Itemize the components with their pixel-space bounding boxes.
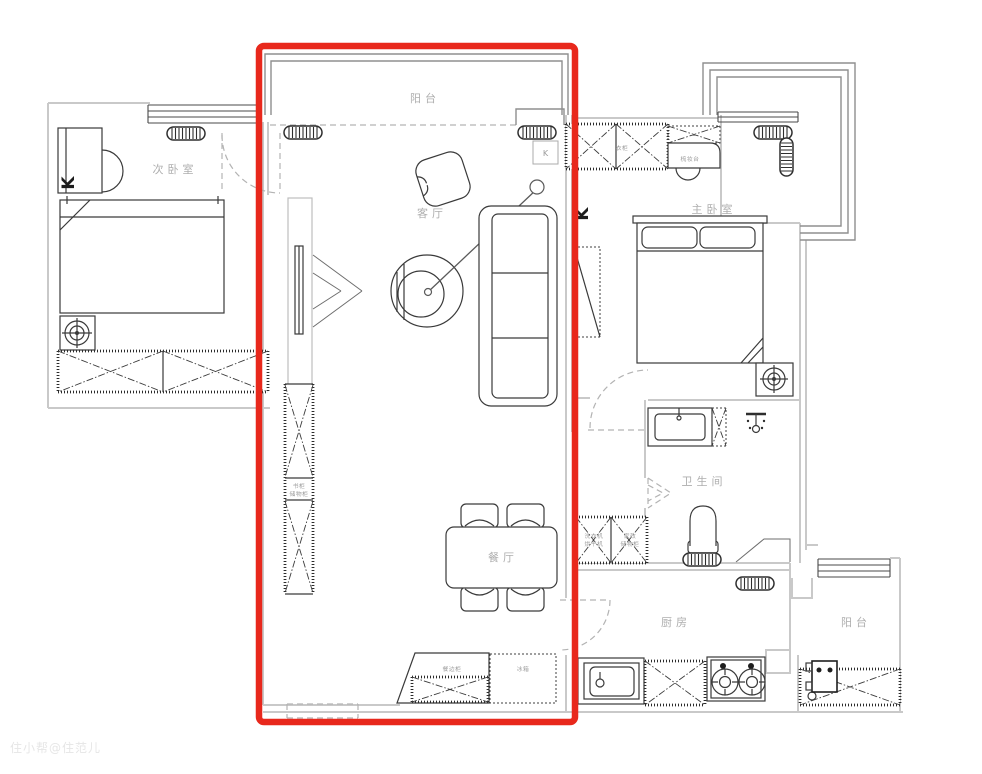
watermark: 住小帮@住范儿 — [10, 741, 101, 755]
living-room: 书柜 储物柜 K 客厅 阳台 — [284, 91, 600, 594]
shower-screen — [736, 539, 790, 562]
toilet — [683, 506, 721, 566]
walls — [48, 103, 903, 712]
shower-head — [746, 414, 766, 433]
window-secondary-bedroom — [148, 105, 258, 123]
room-label-balcony-top: 阳台 — [410, 91, 440, 105]
bed-master — [633, 216, 767, 363]
nightstand-master — [756, 363, 793, 396]
bed-secondary — [60, 196, 224, 313]
stool — [676, 168, 700, 180]
wardrobe-label: 衣柜 — [616, 144, 629, 152]
dining-chair — [461, 587, 498, 611]
window-master-bedroom — [718, 112, 798, 122]
desk-chair — [102, 150, 123, 192]
wardrobe-secondary — [58, 351, 268, 392]
storage-label-line1: 家政 — [624, 532, 637, 540]
storage-cabinet-tall: 书柜 储物柜 — [284, 384, 314, 594]
floor-plan-canvas: K K — [0, 0, 982, 774]
vanity-side-cabinet — [712, 408, 726, 446]
window-kitchen-balcony — [818, 559, 890, 577]
sofa — [479, 206, 557, 406]
room-label-dining-room: 餐厅 — [488, 550, 518, 564]
sideboard: 餐边柜 — [397, 653, 489, 703]
radiator-legend-letter: K — [543, 149, 549, 158]
room-label-kitchen: 厨房 — [661, 616, 691, 629]
secondary-bedroom: K 次卧室 — [58, 127, 280, 392]
bathroom: 卫生间 — [648, 408, 790, 566]
armchair — [413, 149, 473, 209]
cabinet-label-line2: 储物柜 — [290, 490, 309, 498]
dressing-table-label: 梳妆台 — [681, 155, 700, 163]
kitchen-counter-left — [645, 661, 705, 705]
radiator-marker-k: K — [59, 176, 79, 190]
dining-chair — [507, 504, 544, 528]
washer-label-line2: 烘干机 — [585, 540, 604, 548]
wardrobe-master: 衣柜 — [566, 124, 668, 169]
storage-label-line2: 储物柜 — [621, 540, 640, 548]
room-label-secondary-bedroom: 次卧室 — [153, 162, 198, 176]
dressing-table: 梳妆台 — [668, 126, 720, 180]
tv-view-lines — [313, 255, 362, 327]
vanity-sink — [648, 408, 712, 446]
tv-wall-unit — [288, 198, 362, 385]
fridge: 冰箱 — [490, 654, 556, 703]
kitchen-sink — [578, 658, 644, 704]
room-label-balcony-kitchen: 阳台 — [841, 615, 871, 629]
floor-plan-page: K K — [0, 0, 982, 774]
balcony-top-structure: K — [265, 54, 568, 164]
washer-storage-unit: 洗衣机 烘干机 家政 储物柜 — [576, 517, 647, 563]
room-label-master-bedroom: 主卧室 — [692, 202, 737, 216]
door-secondary-bedroom — [222, 133, 280, 193]
room-label-living-room: 客厅 — [417, 206, 447, 220]
washer-label-line1: 洗衣机 — [585, 532, 604, 540]
door-kitchen — [560, 600, 610, 650]
dining-chair — [507, 587, 544, 611]
fridge-label: 冰箱 — [517, 665, 530, 673]
gas-stove — [707, 657, 765, 701]
sideboard-label: 餐边柜 — [443, 665, 462, 673]
kitchen: 厨房 阳台 — [560, 577, 900, 705]
room-label-bathroom: 卫生间 — [682, 474, 727, 488]
dining-chair — [461, 504, 498, 528]
nightstand-secondary — [60, 316, 95, 350]
door-master-bedroom — [588, 370, 648, 430]
cabinet-label-line1: 书柜 — [293, 482, 306, 490]
folding-door-bathroom — [648, 478, 671, 508]
